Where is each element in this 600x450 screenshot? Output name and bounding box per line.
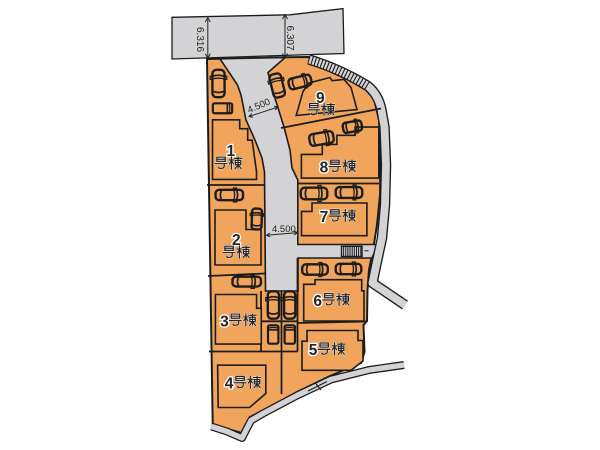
svg-text:3: 3 [220,313,229,330]
svg-text:6.316: 6.316 [194,27,205,52]
svg-text:8: 8 [320,159,329,176]
svg-text:7: 7 [320,209,329,226]
svg-text:6.307: 6.307 [284,26,295,51]
svg-text:4.500: 4.500 [272,224,296,235]
svg-text:4: 4 [225,376,234,393]
svg-text:5: 5 [309,342,318,359]
svg-text:6: 6 [313,293,322,310]
